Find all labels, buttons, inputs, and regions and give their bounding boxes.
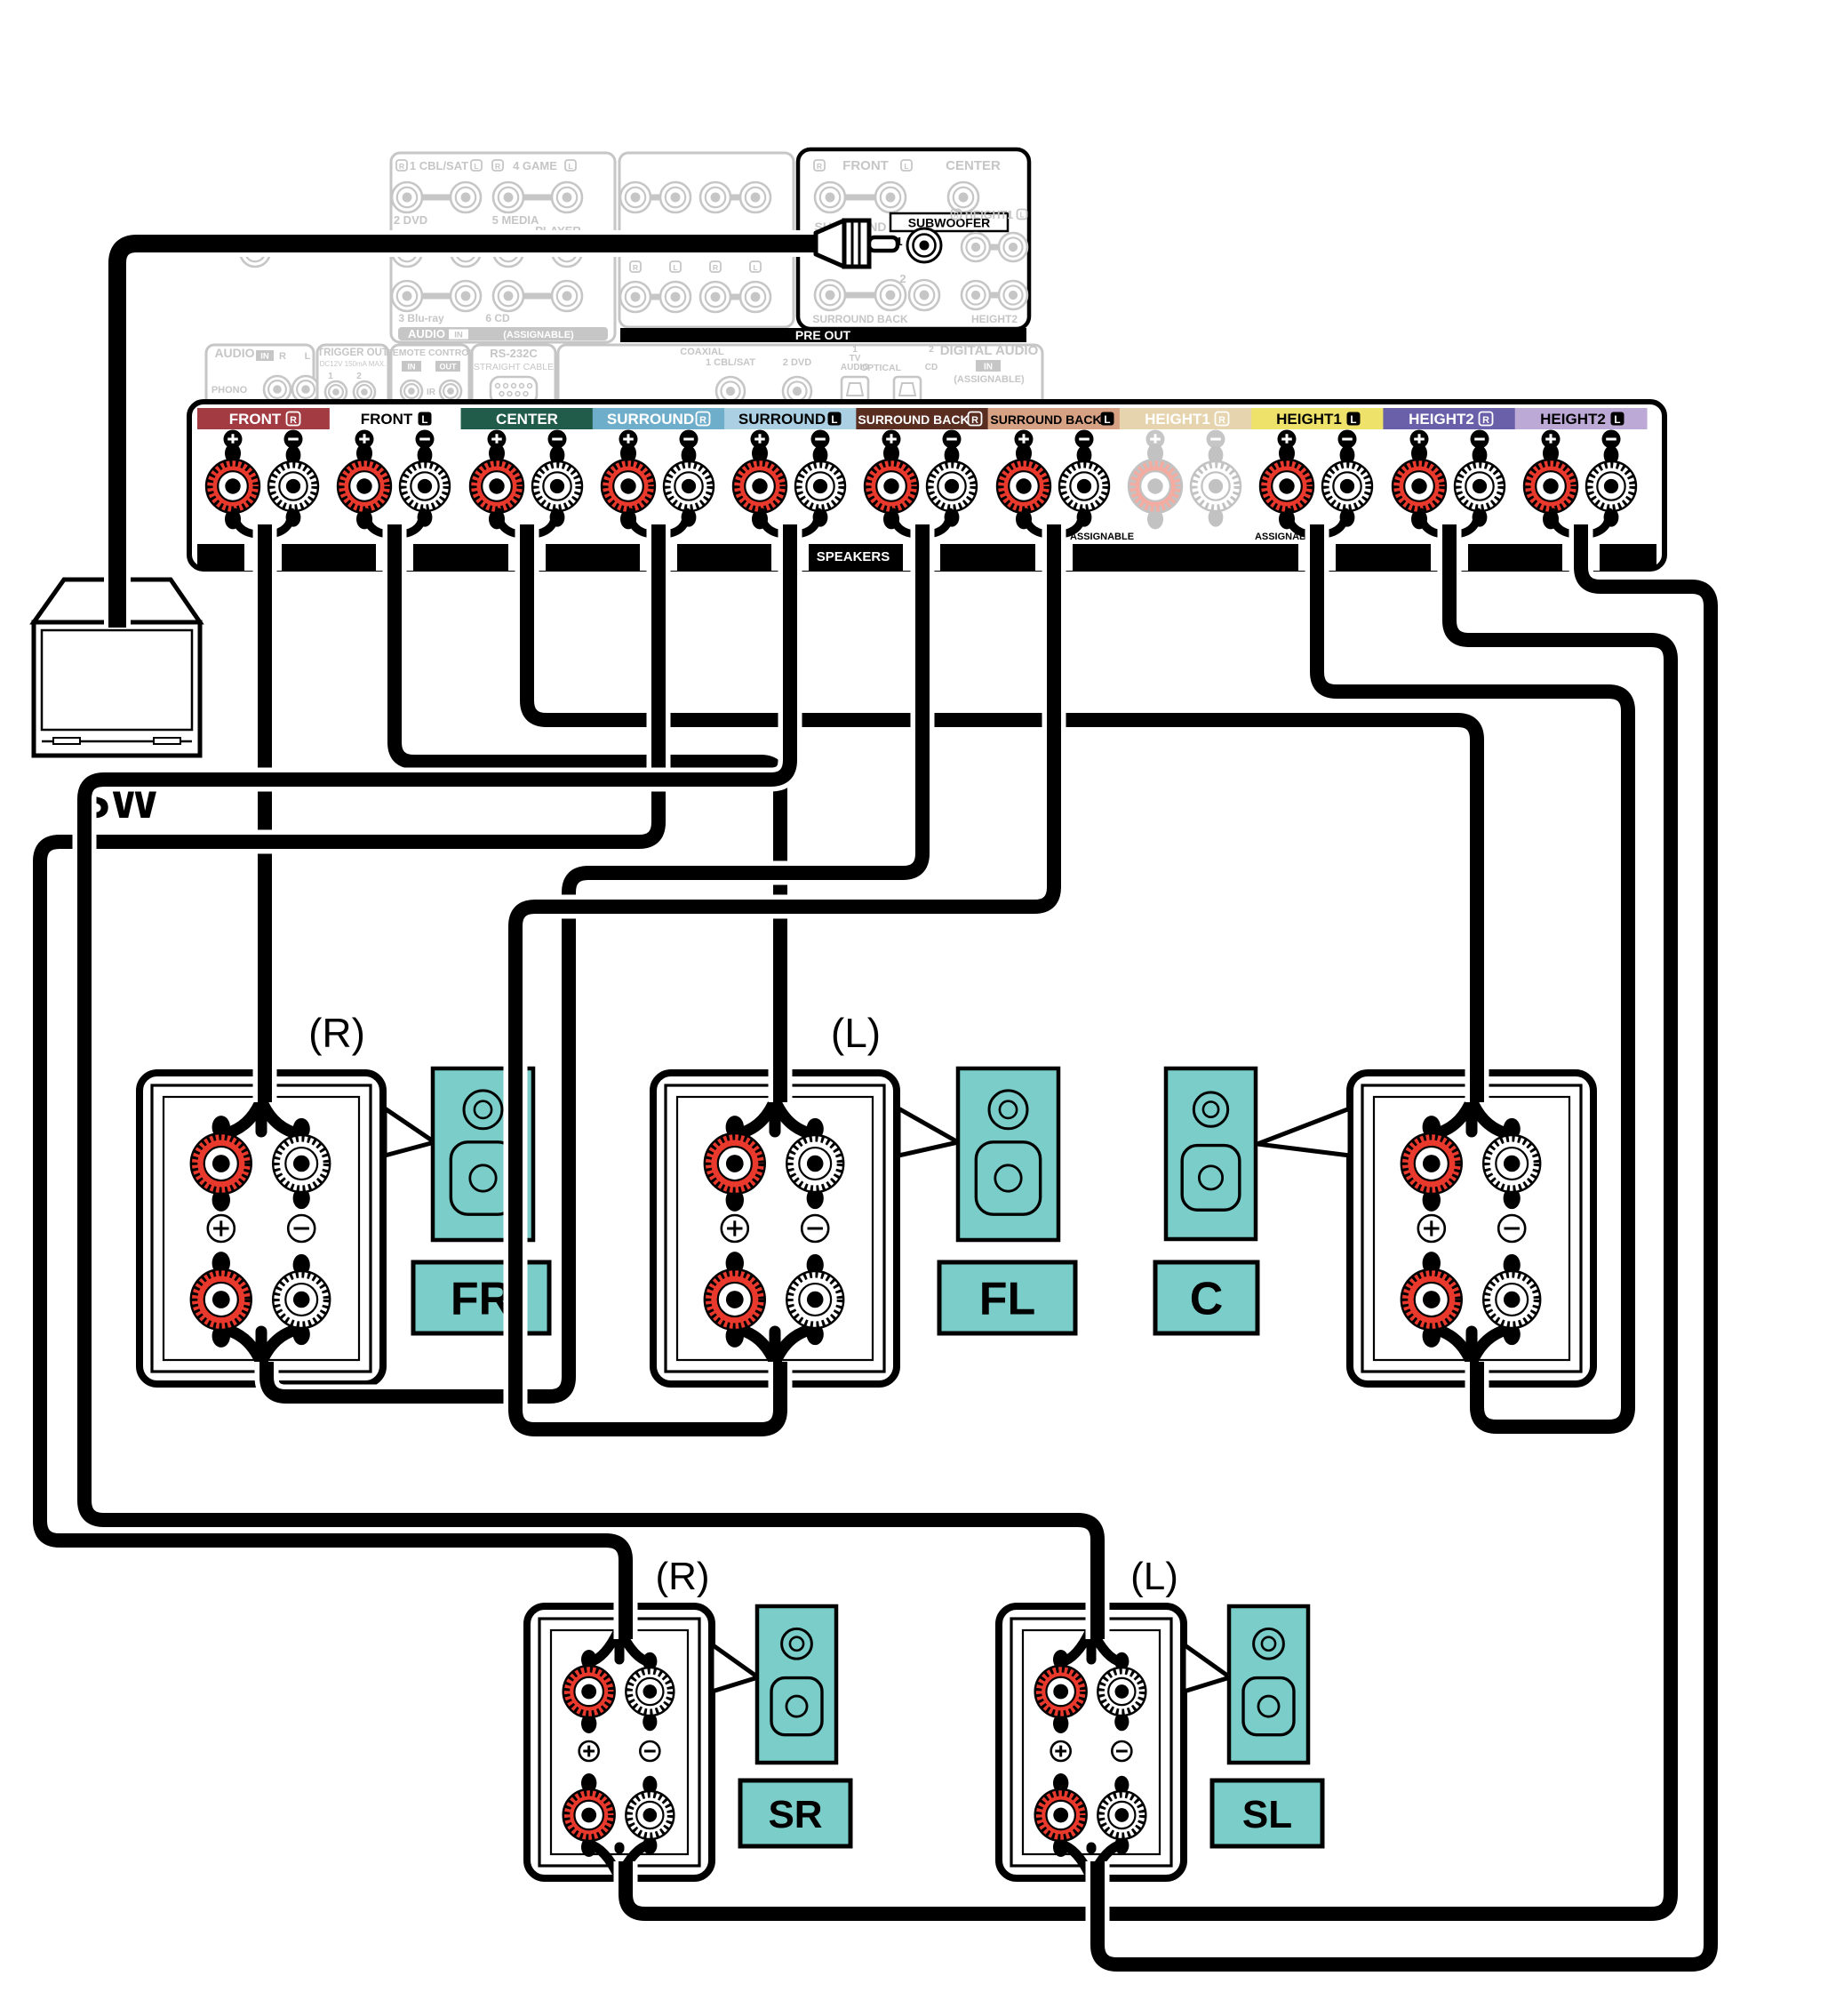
terminal-box-fr bbox=[140, 1073, 383, 1384]
subwoofer-jack bbox=[907, 228, 941, 262]
rca-jack bbox=[620, 182, 651, 212]
speaker-label-c: C bbox=[1155, 1262, 1257, 1333]
label: FRONT bbox=[361, 411, 413, 428]
header-surround-left: (L) bbox=[1130, 1555, 1178, 1598]
rca-jack bbox=[875, 280, 906, 310]
rear-panel-faded: R1 CBL/SATLR4 GAMEL2 DVD5 MEDIAPLAYER3 B… bbox=[206, 149, 1042, 412]
label: 1 bbox=[328, 372, 333, 381]
minus-icon bbox=[1338, 430, 1357, 449]
label: L bbox=[568, 162, 572, 171]
rca-jack bbox=[740, 282, 770, 312]
label: R bbox=[1218, 415, 1225, 426]
label: 1 CBL/SAT bbox=[706, 357, 755, 368]
label: (ASSIGNABLE) bbox=[954, 374, 1025, 385]
terminal-box-fl bbox=[653, 1073, 897, 1384]
label: REMOTE CONTROL bbox=[386, 348, 475, 358]
label: L bbox=[1614, 414, 1620, 426]
diagram-canvas: R1 CBL/SATLR4 GAMEL2 DVD5 MEDIAPLAYER3 B… bbox=[0, 0, 1828, 2012]
rca-jack bbox=[401, 380, 422, 402]
speaker-icon-sr bbox=[757, 1606, 836, 1763]
label: L bbox=[305, 351, 311, 362]
minus-terminal-icon bbox=[1112, 1741, 1131, 1761]
plus-terminal-icon bbox=[1418, 1215, 1445, 1242]
rca-jack bbox=[451, 281, 481, 311]
label: R bbox=[399, 162, 405, 171]
label: L bbox=[753, 263, 757, 272]
label: 6 CD bbox=[485, 312, 510, 324]
label: FRONT bbox=[229, 411, 282, 428]
label: IN bbox=[260, 352, 269, 362]
rca-jack bbox=[875, 182, 906, 212]
rca-jack bbox=[700, 282, 730, 312]
cable-front-l-to-fl-top bbox=[395, 524, 780, 1102]
callout-wedge bbox=[898, 1108, 958, 1156]
rca-jack bbox=[815, 182, 845, 212]
label: L bbox=[904, 162, 908, 171]
label: R bbox=[713, 263, 719, 272]
speaker-icon-sl bbox=[1229, 1606, 1308, 1763]
label: AUDIO bbox=[408, 327, 445, 340]
label: 2 DVD bbox=[394, 213, 427, 227]
rca-jack bbox=[740, 182, 770, 212]
plus-terminal-icon bbox=[208, 1215, 235, 1242]
label: IN bbox=[408, 363, 416, 372]
label: IN bbox=[984, 363, 993, 372]
minus-terminal-icon bbox=[802, 1215, 828, 1242]
channel-glyph: L bbox=[1347, 412, 1361, 427]
label: R bbox=[279, 351, 286, 362]
label: L bbox=[1350, 414, 1356, 426]
plus-terminal-icon bbox=[1051, 1741, 1071, 1761]
label: SURROUND BACK bbox=[990, 412, 1101, 427]
minus-terminal-icon bbox=[288, 1215, 315, 1242]
minus-icon bbox=[416, 430, 435, 449]
minus-icon bbox=[680, 430, 698, 449]
minus-icon bbox=[1602, 430, 1621, 449]
label: SURROUND BACK bbox=[858, 412, 969, 427]
label: SR bbox=[768, 1793, 822, 1836]
label: R bbox=[954, 212, 959, 220]
label: FL bbox=[979, 1274, 1036, 1325]
header-front-left: (L) bbox=[831, 1010, 881, 1056]
channel-glyph: L bbox=[1611, 412, 1624, 427]
optical-jack bbox=[842, 377, 868, 402]
label: CENTER bbox=[946, 158, 1001, 173]
rca-jack bbox=[392, 182, 422, 212]
plus-terminal-icon bbox=[579, 1741, 599, 1761]
callout-wedge bbox=[712, 1644, 758, 1692]
rca-jack bbox=[948, 182, 978, 212]
label: L bbox=[831, 414, 837, 426]
label: SURROUND bbox=[738, 411, 826, 428]
label: C bbox=[1190, 1274, 1224, 1325]
channel-glyph: L bbox=[1101, 412, 1114, 427]
rca-jack bbox=[999, 233, 1027, 261]
label: L bbox=[1104, 414, 1110, 426]
minus-icon bbox=[284, 430, 303, 449]
label: L bbox=[1020, 212, 1025, 220]
label: PHONO bbox=[212, 385, 248, 396]
label: HEIGHT1 bbox=[1276, 411, 1342, 428]
channel-glyph: L bbox=[419, 412, 432, 427]
minus-terminal-icon bbox=[1498, 1215, 1525, 1242]
label: STRAIGHT CABLE bbox=[474, 362, 554, 372]
label: OUT bbox=[440, 363, 458, 372]
channel-glyph: L bbox=[828, 412, 842, 427]
label: FR bbox=[451, 1274, 512, 1325]
speaker-label-fl: FL bbox=[939, 1262, 1075, 1333]
callout-wedge bbox=[1257, 1108, 1350, 1156]
label: HEIGHT1 bbox=[965, 209, 1013, 221]
label: SURROUND BACK bbox=[812, 313, 908, 325]
rca-jack bbox=[660, 282, 690, 312]
label: R bbox=[290, 415, 297, 426]
label: TRIGGER OUT bbox=[317, 348, 388, 358]
header-front-right: (R) bbox=[308, 1010, 365, 1056]
label: (ASSIGNABLE) bbox=[503, 330, 574, 340]
label: FRONT bbox=[842, 158, 889, 173]
label: CENTER bbox=[496, 411, 558, 428]
rca-jack bbox=[909, 280, 939, 310]
label: RS-232C bbox=[490, 347, 538, 360]
label: R bbox=[1482, 415, 1489, 426]
rca-jack bbox=[962, 281, 990, 309]
minus-icon bbox=[811, 430, 830, 449]
label: 3 Blu-ray bbox=[398, 312, 444, 324]
rca-jack bbox=[440, 380, 461, 402]
rca-jack bbox=[493, 182, 523, 212]
label: HEIGHT2 bbox=[971, 313, 1018, 325]
label: HEIGHT2 bbox=[1540, 411, 1606, 428]
label: PRE OUT bbox=[795, 328, 851, 342]
terminal-box-sr bbox=[527, 1606, 712, 1878]
minus-icon bbox=[548, 430, 567, 449]
rca-jack bbox=[660, 182, 690, 212]
label: R bbox=[971, 415, 978, 426]
rca-jack bbox=[451, 182, 481, 212]
rca-jack bbox=[700, 182, 730, 212]
label: IN bbox=[454, 331, 463, 340]
label: SL bbox=[1242, 1793, 1292, 1836]
label: AUDIO bbox=[214, 346, 254, 360]
rca-jack bbox=[620, 282, 651, 312]
callout-wedge bbox=[385, 1108, 435, 1156]
label: 1 CBL/SAT bbox=[410, 159, 468, 172]
label: CD bbox=[925, 363, 938, 372]
rca-jack bbox=[552, 281, 582, 311]
speaker-icon-c bbox=[1166, 1068, 1256, 1239]
label: 2 bbox=[929, 345, 934, 355]
label: R bbox=[633, 263, 639, 272]
label: L bbox=[673, 263, 677, 272]
label: 4 GAME bbox=[513, 159, 557, 172]
rca-jack bbox=[292, 376, 319, 403]
minus-terminal-icon bbox=[640, 1741, 659, 1761]
optical-jack bbox=[894, 377, 921, 402]
label: DC12V 150mA MAX. bbox=[320, 360, 387, 368]
plus-terminal-icon bbox=[722, 1215, 748, 1242]
label: SURROUND bbox=[607, 411, 694, 428]
rca-jack bbox=[962, 233, 990, 261]
label: 2 DVD bbox=[783, 357, 811, 368]
rca-jack bbox=[552, 182, 582, 212]
label: IR bbox=[427, 388, 436, 397]
minus-icon bbox=[1207, 430, 1225, 449]
label: OPTICAL bbox=[860, 363, 902, 373]
rca-jack bbox=[392, 281, 422, 311]
label: HEIGHT1 bbox=[1145, 411, 1210, 428]
label: DIGITAL AUDIO bbox=[940, 343, 1039, 358]
rca-jack bbox=[999, 281, 1027, 309]
label: HEIGHT2 bbox=[1409, 411, 1474, 428]
rca-jack bbox=[493, 281, 523, 311]
speakers-bar-label: SPEAKERS bbox=[817, 549, 890, 564]
speaker-label-sl: SL bbox=[1212, 1780, 1322, 1846]
label: R bbox=[817, 162, 823, 171]
speaker-icon-fl bbox=[958, 1068, 1058, 1240]
terminal-box-c bbox=[1350, 1073, 1593, 1384]
label: L bbox=[474, 162, 478, 171]
label: R bbox=[699, 415, 706, 426]
rca-jack bbox=[264, 376, 291, 403]
rca-jack bbox=[815, 280, 845, 310]
assignable-label-1: ASSIGNABLE bbox=[1070, 532, 1134, 542]
label: 5 MEDIA bbox=[492, 213, 539, 227]
header-surround-right: (R) bbox=[655, 1555, 709, 1598]
speaker-label-fr: FR bbox=[413, 1262, 549, 1333]
label: L bbox=[421, 414, 427, 426]
callout-wedge bbox=[1184, 1644, 1230, 1692]
terminal-box-sl bbox=[999, 1606, 1184, 1878]
label: COAXIAL bbox=[680, 347, 724, 357]
label: R bbox=[495, 162, 501, 171]
minus-icon bbox=[1471, 430, 1489, 449]
label: 2 bbox=[356, 372, 362, 381]
speaker-connection-diagram: R1 CBL/SATLR4 GAMEL2 DVD5 MEDIAPLAYER3 B… bbox=[0, 0, 1828, 2012]
speaker-label-sr: SR bbox=[740, 1780, 850, 1846]
minus-icon bbox=[943, 430, 962, 449]
minus-icon bbox=[1075, 430, 1094, 449]
